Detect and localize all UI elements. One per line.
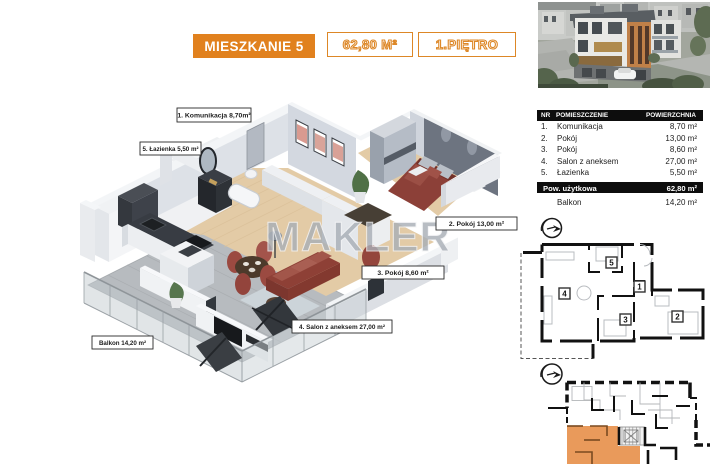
svg-text:4. Salon z aneksem 27,00 m²: 4. Salon z aneksem 27,00 m² <box>299 324 385 331</box>
svg-text:MAKLER: MAKLER <box>265 213 451 260</box>
svg-text:3. Pokój 8,60 m²: 3. Pokój 8,60 m² <box>377 270 429 277</box>
svg-text:5: 5 <box>609 259 614 268</box>
svg-text:Balkon 14,20 m²: Balkon 14,20 m² <box>99 340 146 347</box>
svg-text:1. Komunikacja 8,70m²: 1. Komunikacja 8,70m² <box>177 112 251 119</box>
svg-text:3: 3 <box>623 316 628 325</box>
svg-text:1: 1 <box>637 283 642 292</box>
svg-text:4: 4 <box>562 290 567 299</box>
svg-text:5. Łazienka 5,50 m²: 5. Łazienka 5,50 m² <box>142 146 198 153</box>
svg-text:2. Pokój 13,00 m²: 2. Pokój 13,00 m² <box>449 221 505 228</box>
svg-text:2: 2 <box>675 313 680 322</box>
